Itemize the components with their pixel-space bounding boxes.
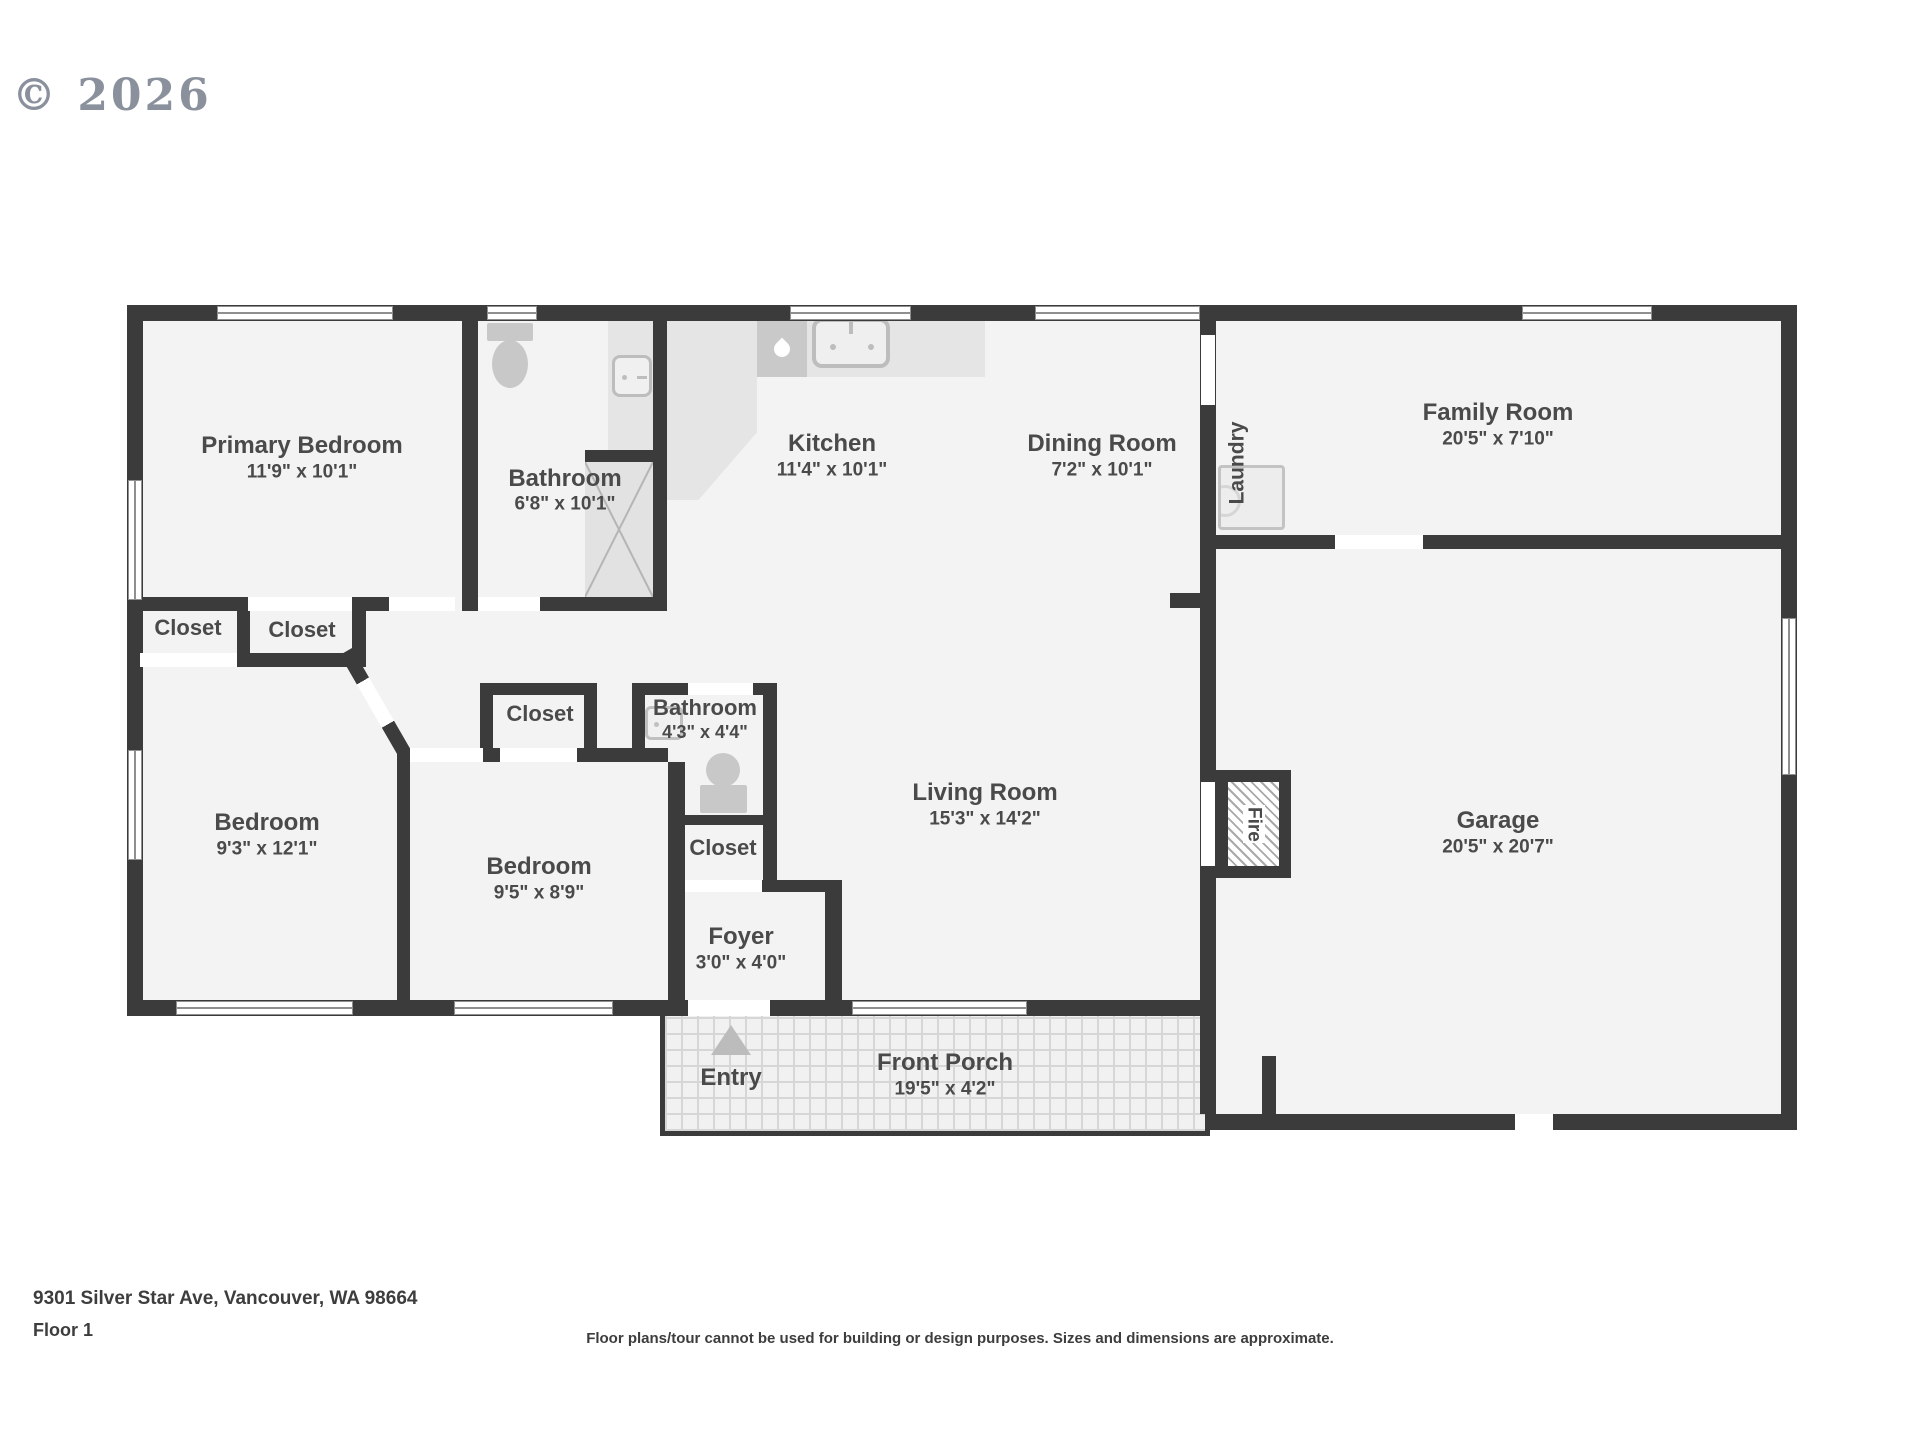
dishwasher-icon: [757, 321, 807, 377]
sink-dot-left: [830, 344, 836, 350]
wall-hallcloset-top: [480, 683, 597, 695]
label-closet-hall: Closet: [506, 703, 573, 725]
window-bathroom-top: [487, 306, 537, 320]
door-fireplace-gap: [1201, 782, 1215, 866]
dims-bathroom-hall: 4'3" x 4'4": [662, 723, 748, 741]
wall-family-garage-b: [1423, 535, 1781, 549]
dims-dining-room: 7'2" x 10'1": [1051, 461, 1152, 480]
door-hall-closet: [500, 748, 577, 762]
disclaimer-text: Floor plans/tour cannot be used for buil…: [0, 1330, 1920, 1347]
toilet-icon: [487, 323, 533, 341]
faucet-dot: [622, 375, 627, 380]
label-laundry: Laundry: [1227, 422, 1248, 505]
door-bathroom-main: [478, 597, 540, 611]
window-bedroom-left-bottom: [176, 1001, 353, 1015]
dims-primary-bedroom: 11'9" x 10'1": [247, 463, 358, 482]
wall-hallbath-top-a: [645, 683, 688, 695]
toilet-2-tank-icon: [700, 785, 747, 813]
wall-hall-b: [352, 597, 389, 611]
wall-foyercloset-bottom-a: [672, 880, 685, 892]
faucet-dash: [637, 376, 647, 379]
wall-midbed-top-a: [483, 748, 500, 762]
window-dining-top: [1035, 306, 1200, 320]
wall-hallbath-right: [763, 683, 777, 892]
address-text: 9301 Silver Star Ave, Vancouver, WA 9866…: [33, 1288, 417, 1310]
label-closet-1: Closet: [154, 617, 221, 639]
label-primary-bedroom: Primary Bedroom: [201, 434, 402, 458]
window-primary-bedroom-left: [128, 480, 142, 600]
door-garage-rear: [1515, 1114, 1553, 1130]
label-garage: Garage: [1457, 809, 1540, 833]
wall-family-garage-a: [1216, 535, 1335, 549]
floor-plan: © 2026: [0, 0, 1920, 1440]
dims-bathroom-main: 6'8" x 10'1": [514, 495, 615, 514]
wall-hall-c: [540, 597, 667, 611]
window-bedroom-left-side: [128, 750, 142, 860]
wall-midbed-left: [397, 748, 410, 1000]
label-dining-room: Dining Room: [1027, 432, 1176, 456]
dims-bedroom-mid: 9'5" x 8'9": [494, 884, 584, 903]
fireplace-label: Fire: [1243, 805, 1265, 844]
label-foyer: Foyer: [708, 925, 773, 949]
door-closet1: [140, 653, 237, 667]
wall-garage-stub: [1262, 1056, 1276, 1114]
wall-bath-closet-divider: [672, 815, 777, 825]
label-bedroom-mid: Bedroom: [486, 855, 591, 879]
wall-hall-a: [127, 597, 248, 611]
water-drop-icon: [771, 338, 794, 361]
window-living-room-bottom: [852, 1001, 1027, 1015]
vanity-sink-icon: [612, 355, 652, 397]
dims-front-porch: 19'5" x 4'2": [894, 1080, 995, 1099]
door-dining-laundry: [1201, 335, 1215, 405]
label-family-room: Family Room: [1423, 401, 1574, 425]
label-closet-foyer: Closet: [689, 837, 756, 859]
door-front-entry: [688, 1000, 770, 1016]
door-primary-bedroom: [389, 597, 455, 611]
dims-kitchen: 11'4" x 10'1": [777, 461, 888, 480]
window-kitchen-top: [790, 306, 911, 320]
window-primary-bedroom-top: [217, 306, 393, 320]
door-closet2: [248, 597, 352, 611]
fireplace-icon: Fire: [1216, 770, 1291, 878]
dims-foyer: 3'0" x 4'0": [696, 954, 786, 973]
wall-garage-bottom: [1208, 1114, 1797, 1130]
wall-shower-stub: [585, 450, 653, 462]
label-kitchen: Kitchen: [788, 432, 876, 456]
window-family-room-top: [1522, 306, 1652, 320]
label-entry: Entry: [700, 1066, 761, 1090]
door-hall-bathroom: [688, 683, 753, 695]
label-living-room: Living Room: [912, 781, 1057, 805]
dims-garage: 20'5" x 20'7": [1442, 838, 1554, 857]
dims-family-room: 20'5" x 7'10": [1442, 430, 1554, 449]
faucet-dot-2: [654, 722, 659, 727]
entry-arrow-icon: [711, 1025, 751, 1055]
window-bedroom-mid-bottom: [454, 1001, 613, 1015]
sink-divider: [849, 322, 853, 334]
dims-bedroom-left: 9'3" x 12'1": [216, 840, 317, 859]
window-garage-right: [1782, 618, 1796, 775]
wall-primary-bedroom-right: [462, 321, 478, 611]
door-mid-bedroom: [410, 748, 483, 762]
label-bathroom-hall: Bathroom: [653, 697, 757, 719]
door-family-garage: [1335, 535, 1423, 549]
toilet-bowl-icon: [492, 340, 528, 388]
wall-center-vertical: [1200, 321, 1216, 1114]
label-front-porch: Front Porch: [877, 1051, 1013, 1075]
wall-foyer-right: [825, 880, 842, 1000]
label-bedroom-left: Bedroom: [214, 811, 319, 835]
wall-midbed-top-b: [577, 748, 668, 762]
sink-dot-right: [868, 344, 874, 350]
dims-living-room: 15'3" x 14'2": [929, 810, 1041, 829]
wall-dining-living-stub: [1170, 593, 1200, 608]
kitchen-sink-icon: [812, 318, 890, 368]
door-foyer-closet: [685, 880, 762, 892]
label-closet-2: Closet: [268, 619, 335, 641]
toilet-2-bowl-icon: [706, 753, 740, 787]
wall-bathroom-right: [653, 321, 667, 611]
copyright-watermark: © 2026: [12, 70, 212, 121]
label-bathroom-main: Bathroom: [508, 467, 621, 491]
